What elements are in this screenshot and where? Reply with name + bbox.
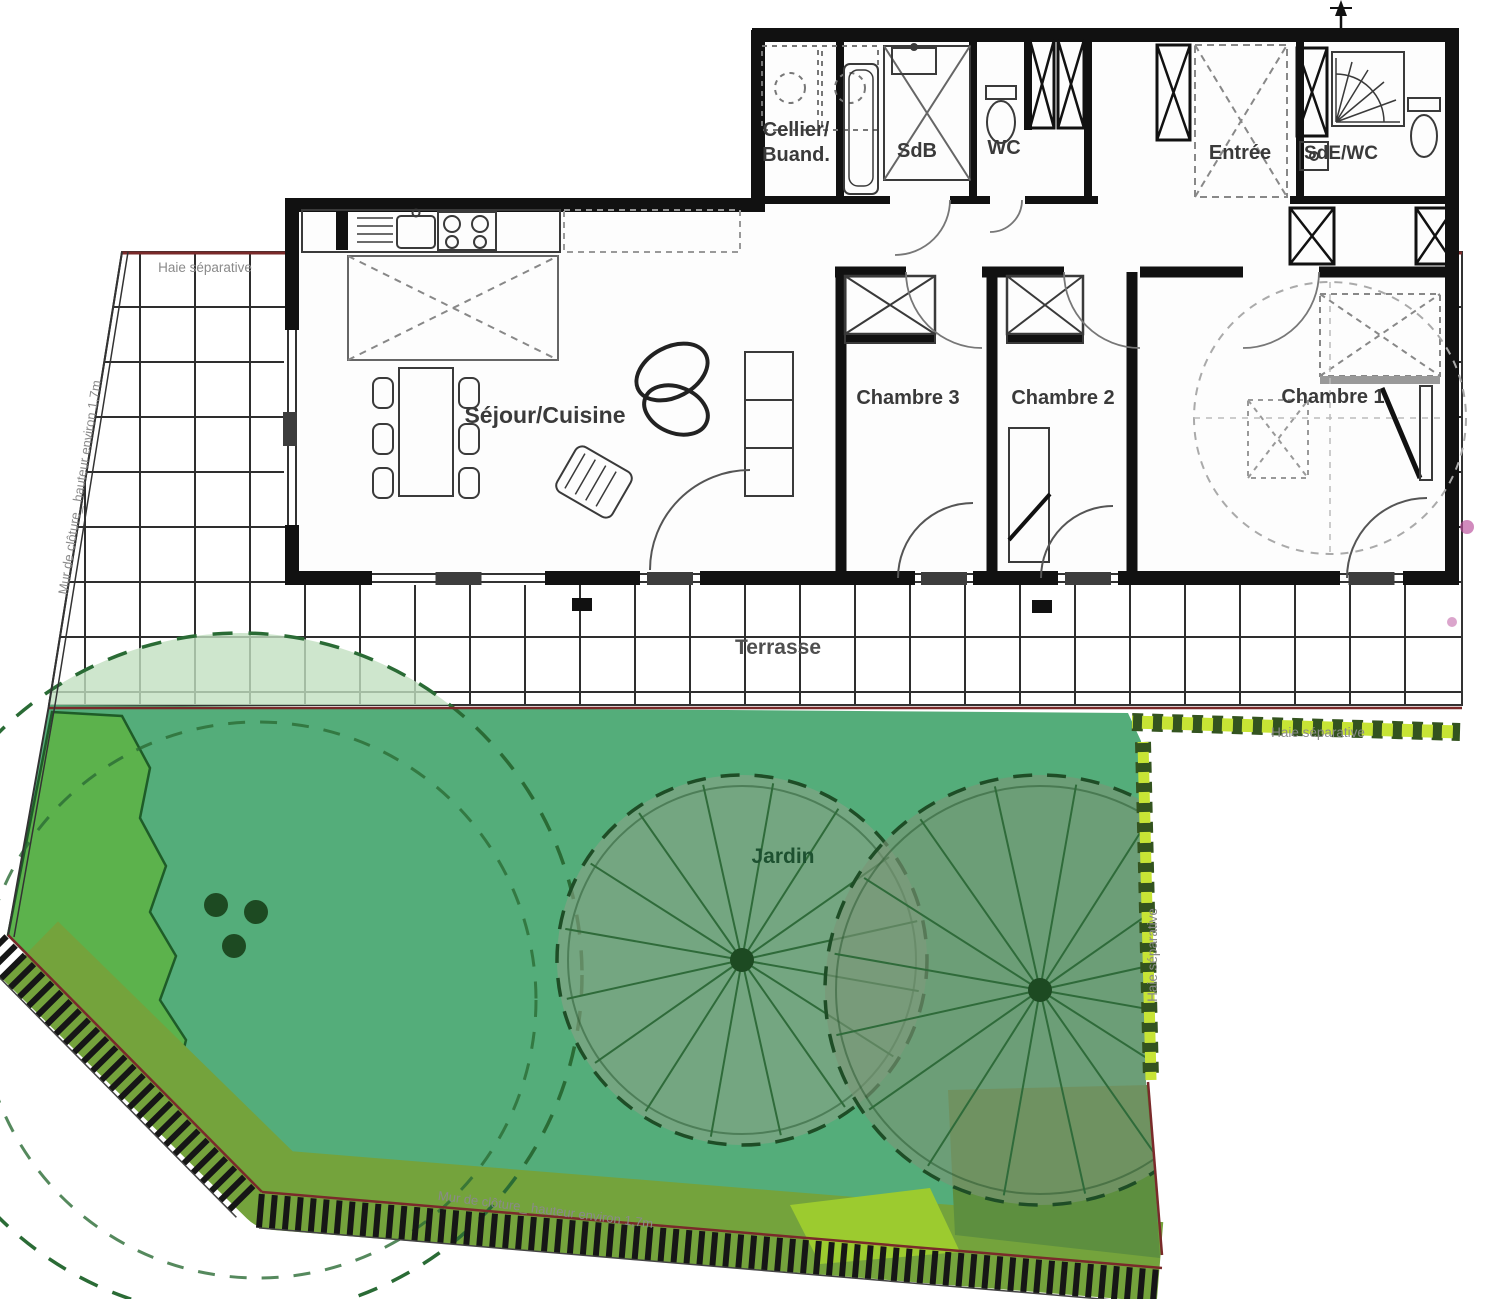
hatch-stripe	[1140, 1268, 1143, 1299]
plan-mark-pink	[1447, 617, 1457, 627]
hatch-stripe	[350, 1202, 353, 1236]
hatch-stripe	[466, 1211, 469, 1245]
terrace-mark	[1032, 600, 1052, 613]
wardrobe-front	[1320, 376, 1440, 384]
room-label-wc: WC	[987, 137, 1020, 159]
hatch-stripe	[479, 1213, 482, 1247]
room-label-sdb: SdB	[897, 140, 937, 162]
garden	[0, 633, 1255, 1299]
hatch-stripe	[570, 1220, 573, 1254]
hatch-stripe	[971, 1254, 974, 1288]
hatch-stripe	[609, 1224, 612, 1258]
hatch-stripe	[583, 1221, 586, 1255]
room-label-cellier-line2: Buand.	[762, 144, 830, 166]
hatch-stripe	[492, 1214, 495, 1248]
window-dimension-tag	[436, 572, 482, 585]
hatch-stripe	[1101, 1265, 1104, 1299]
hatch-stripe	[673, 1229, 676, 1263]
hatch-stripe	[1023, 1259, 1026, 1293]
hatch-stripe	[414, 1207, 417, 1241]
hatch-stripe	[453, 1210, 456, 1244]
plan-mark-pink	[1460, 520, 1474, 534]
hatch-stripe	[285, 1196, 288, 1230]
hatch-stripe	[816, 1241, 819, 1275]
hatch-stripe	[622, 1225, 625, 1259]
room-label-entree: Entrée	[1209, 142, 1271, 164]
hatch-stripe	[1062, 1262, 1065, 1296]
area-label-jardin: Jardin	[751, 845, 814, 868]
hatch-stripe	[699, 1231, 702, 1265]
hatch-stripe	[868, 1245, 871, 1279]
hedge-label-east-vertical: Haie séparative	[1145, 908, 1160, 1002]
hatch-stripe	[920, 1250, 923, 1284]
hatch-stripe	[298, 1197, 301, 1231]
hatch-stripe	[440, 1209, 443, 1243]
room-label-chambre1: Chambre 1	[1281, 386, 1384, 408]
wall-return	[336, 210, 348, 250]
hatch-stripe	[531, 1217, 534, 1251]
hatch-stripe	[635, 1226, 638, 1260]
room-label-chambre2: Chambre 2	[1011, 387, 1114, 409]
hatch-stripe	[894, 1248, 897, 1282]
window-dimension-tag	[647, 572, 693, 585]
hatch-stripe	[855, 1244, 858, 1278]
hatch-stripe	[259, 1194, 262, 1228]
hatch-stripe	[984, 1255, 987, 1289]
hatch-stripe	[1127, 1267, 1130, 1299]
hatch-stripe	[427, 1208, 430, 1242]
hatch-stripe	[337, 1201, 340, 1235]
room-label-chambre3: Chambre 3	[856, 387, 959, 409]
floorplan-page: Cellier/ Buand. SdB WC Entrée SdE/WC Séj…	[0, 0, 1500, 1299]
north-arrow-icon	[1330, 0, 1352, 30]
hatch-stripe	[958, 1253, 961, 1287]
hatch-stripe	[1153, 1269, 1156, 1299]
bush-dot	[204, 893, 228, 917]
hatch-stripe	[1036, 1260, 1039, 1294]
hatch-stripe	[738, 1234, 741, 1268]
room-label-sejour: Séjour/Cuisine	[464, 402, 625, 428]
hatch-stripe	[596, 1222, 599, 1256]
hatch-stripe	[505, 1215, 508, 1249]
area-label-terrasse: Terrasse	[735, 636, 821, 659]
wheel-tree-trunk	[1028, 978, 1052, 1002]
hedge-label-northwest: Haie séparative	[158, 260, 252, 275]
hatch-stripe	[401, 1206, 404, 1240]
building-footprint	[292, 35, 1452, 578]
window-dimension-tag	[1065, 572, 1111, 585]
hatch-stripe	[1088, 1264, 1091, 1298]
hatch-stripe	[1049, 1261, 1052, 1295]
hatch-stripe	[544, 1218, 547, 1252]
hatch-stripe	[946, 1252, 949, 1286]
hatch-stripe	[842, 1243, 845, 1277]
room-label-sde-wc: SdE/WC	[1304, 143, 1378, 164]
hatch-stripe	[311, 1198, 314, 1232]
hatch-stripe	[725, 1233, 728, 1267]
hatch-stripe	[1114, 1266, 1117, 1299]
hatch-stripe	[557, 1219, 560, 1253]
hatch-stripe	[712, 1232, 715, 1266]
hatch-stripe	[997, 1256, 1000, 1290]
building	[283, 28, 1466, 585]
hatch-stripe	[363, 1203, 366, 1237]
hatch-stripe	[518, 1216, 521, 1250]
hatch-stripe	[648, 1227, 651, 1261]
hatch-stripe	[686, 1230, 689, 1264]
hatch-stripe	[661, 1228, 664, 1262]
hatch-stripe	[764, 1237, 767, 1271]
bush-dot	[244, 900, 268, 924]
window-dimension-tag	[283, 412, 297, 446]
hatch-stripe	[389, 1205, 392, 1239]
hatch-stripe	[324, 1199, 327, 1233]
hatch-stripe	[790, 1239, 793, 1273]
floorplan-drawing: Cellier/ Buand. SdB WC Entrée SdE/WC Séj…	[0, 0, 1500, 1299]
hatch-stripe	[376, 1204, 379, 1238]
hatch-stripe	[907, 1249, 910, 1283]
hatch-stripe	[272, 1195, 275, 1229]
hatch-stripe	[751, 1236, 754, 1270]
window-dimension-tag	[1349, 572, 1395, 585]
closet-front	[845, 334, 935, 343]
hatch-stripe	[803, 1240, 806, 1274]
room-label-cellier-line1: Cellier/	[763, 119, 830, 141]
closet-front	[1007, 334, 1083, 343]
hatch-stripe	[881, 1246, 884, 1280]
hedges	[1132, 722, 1460, 1080]
hatch-stripe	[1075, 1263, 1078, 1297]
hedge-label-east: Haie séparative	[1271, 725, 1365, 740]
hatch-stripe	[777, 1238, 780, 1272]
bush-dot	[222, 934, 246, 958]
hatch-stripe	[1010, 1257, 1013, 1291]
window-dimension-tag	[921, 572, 967, 585]
wheel-tree-trunk	[730, 948, 754, 972]
hatch-stripe	[933, 1251, 936, 1285]
hatch-stripe	[829, 1242, 832, 1276]
terrace-mark	[572, 598, 592, 611]
